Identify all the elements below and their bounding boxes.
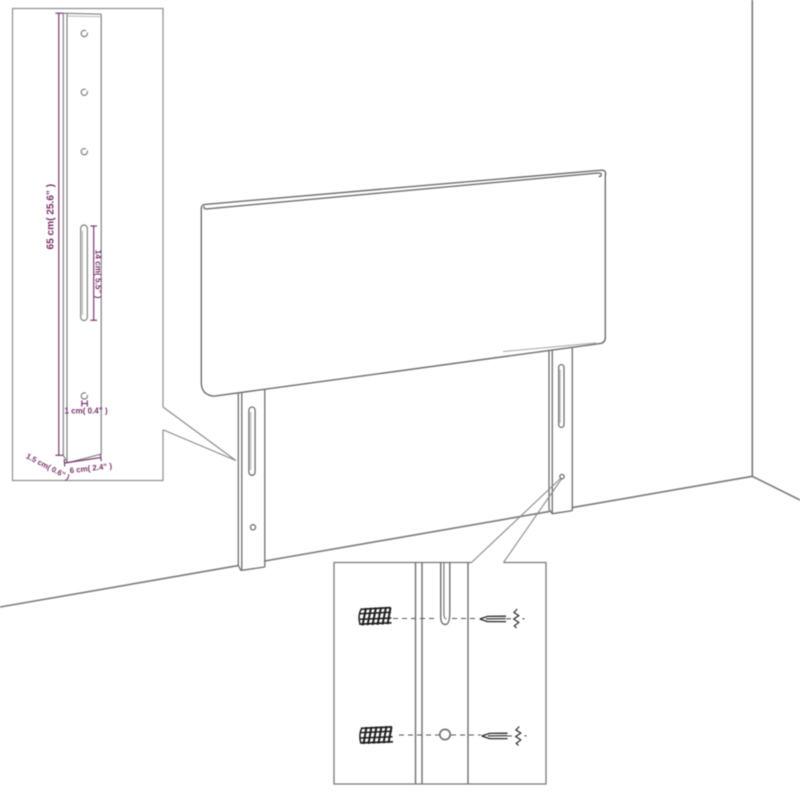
svg-text:1 cm( 0.4” ): 1 cm( 0.4” ) bbox=[65, 407, 108, 416]
svg-text:65 cm( 25.6” ): 65 cm( 25.6” ) bbox=[46, 184, 57, 250]
svg-text:14 cm( 5.5” ): 14 cm( 5.5” ) bbox=[93, 250, 102, 299]
